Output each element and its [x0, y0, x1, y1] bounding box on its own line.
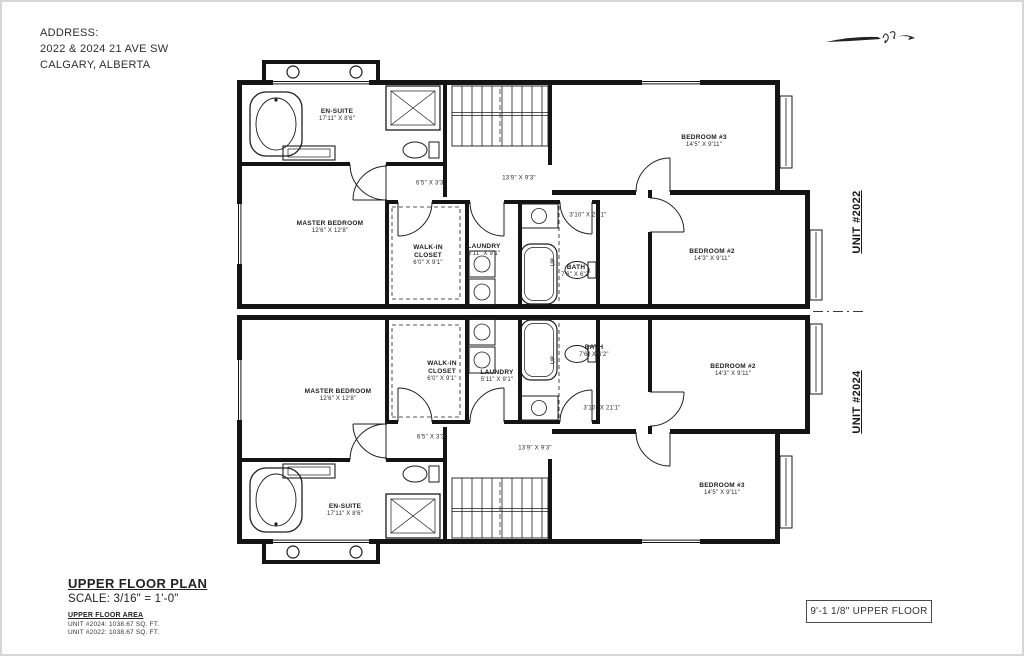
- address-label: ADDRESS:: [40, 26, 168, 42]
- address-block: ADDRESS: 2022 & 2024 21 AVE SW CALGARY, …: [40, 26, 168, 74]
- unit-2022-label: UNIT #2022: [851, 190, 863, 253]
- dim-niche-2024: 6'5" X 3'3": [417, 434, 447, 442]
- unit-2024-label: UNIT #2024: [851, 370, 863, 433]
- room-label-laundry-2024: LAUNDRY 5'11" X 9'1": [480, 369, 513, 385]
- dim-hallway-2024: 3'10" X 21'1": [583, 405, 620, 413]
- room-label-bedroom3-2022: BEDROOM #3 14'5" X 9'11": [681, 134, 726, 150]
- room-label-bath-2022: BATH 7'6" X 6'2": [561, 264, 590, 280]
- room-label-wic-2022: WALK-IN CLOSET 6'0" X 9'1": [403, 244, 453, 268]
- stair-direction-2024: UP: [551, 356, 558, 364]
- title-block: UPPER FLOOR PLAN SCALE: 3/16" = 1'-0" UP…: [68, 576, 207, 636]
- unit-2022-plan: [237, 60, 822, 309]
- unit-2024-plan: [237, 315, 822, 564]
- dim-niche-2022: 6'5" X 3'3": [416, 180, 446, 188]
- room-label-bedroom3-2024: BEDROOM #3 14'5" X 9'11": [699, 482, 744, 498]
- plan-title: UPPER FLOOR PLAN: [68, 576, 207, 591]
- address-line1: 2022 & 2024 21 AVE SW: [40, 42, 168, 58]
- room-label-bath-2024: BATH 7'6" X 6'2": [579, 344, 608, 360]
- room-label-laundry-2022: LAUNDRY 5'11" X 9'1": [467, 243, 500, 259]
- builder-logo-icon: [824, 22, 920, 54]
- address-line2: CALGARY, ALBERTA: [40, 58, 168, 74]
- room-label-ensuite-2024: EN-SUITE 17'11" X 8'6": [327, 503, 363, 519]
- area-heading: UPPER FLOOR AREA: [68, 612, 207, 619]
- dim-stair-hall-2022: 13'9" X 9'3": [502, 175, 536, 183]
- elevation-tag: 9'-1 1/8" UPPER FLOOR: [806, 600, 932, 623]
- area-line-2022: UNIT #2022: 1038.67 SQ. FT.: [68, 629, 207, 636]
- room-label-bedroom2-2022: BEDROOM #2 14'3" X 9'11": [689, 248, 734, 264]
- dim-stair-hall-2024: 13'9" X 9'3": [518, 445, 552, 453]
- room-label-master-2022: MASTER BEDROOM 12'6" X 12'8": [297, 220, 364, 236]
- room-label-wic-2024: WALK-IN CLOSET 6'0" X 9'1": [417, 360, 467, 384]
- dim-hallway-2022: 3'10" X 21'1": [569, 212, 606, 220]
- area-line-2024: UNIT #2024: 1038.67 SQ. FT.: [68, 621, 207, 628]
- floor-plan-sheet: ADDRESS: 2022 & 2024 21 AVE SW CALGARY, …: [0, 0, 1024, 656]
- room-label-ensuite-2022: EN-SUITE 17'11" X 8'6": [319, 108, 355, 124]
- plan-scale: SCALE: 3/16" = 1'-0": [68, 593, 207, 605]
- stair-direction-2022: UP: [551, 258, 558, 266]
- floor-plan-drawing: [0, 0, 1024, 656]
- room-label-master-2024: MASTER BEDROOM 12'6" X 12'8": [305, 388, 372, 404]
- room-label-bedroom2-2024: BEDROOM #2 14'3" X 9'11": [710, 363, 755, 379]
